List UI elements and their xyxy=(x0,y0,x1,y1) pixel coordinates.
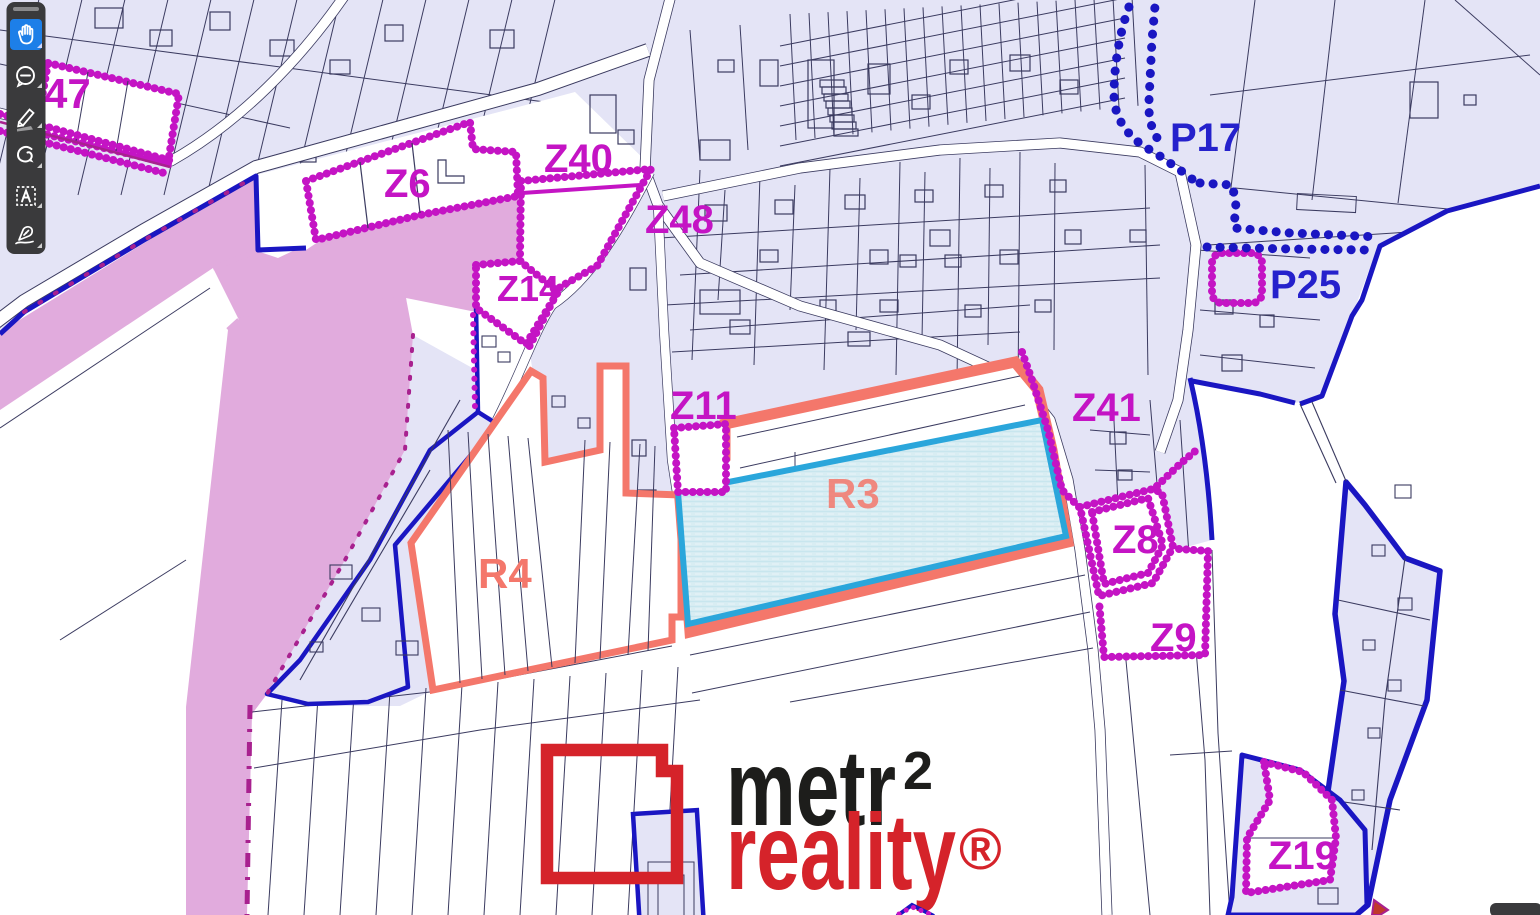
svg-text:Z41: Z41 xyxy=(1072,386,1141,430)
svg-text:47: 47 xyxy=(44,70,91,117)
svg-text:R4: R4 xyxy=(478,550,532,597)
svg-text:P17: P17 xyxy=(1170,116,1241,160)
svg-text:Z48: Z48 xyxy=(645,198,714,242)
svg-text:Z11: Z11 xyxy=(670,384,737,428)
svg-text:®: ® xyxy=(959,817,1002,882)
svg-text:R3: R3 xyxy=(826,470,880,517)
svg-text:Z14: Z14 xyxy=(497,268,559,309)
svg-text:Z6: Z6 xyxy=(384,162,431,206)
svg-text:Z8: Z8 xyxy=(1112,518,1159,562)
svg-text:Z19: Z19 xyxy=(1268,834,1337,878)
svg-text:reality: reality xyxy=(726,791,956,912)
svg-text:Z9: Z9 xyxy=(1150,616,1197,660)
svg-text:Z40: Z40 xyxy=(544,137,613,181)
svg-text:P25: P25 xyxy=(1270,263,1341,307)
